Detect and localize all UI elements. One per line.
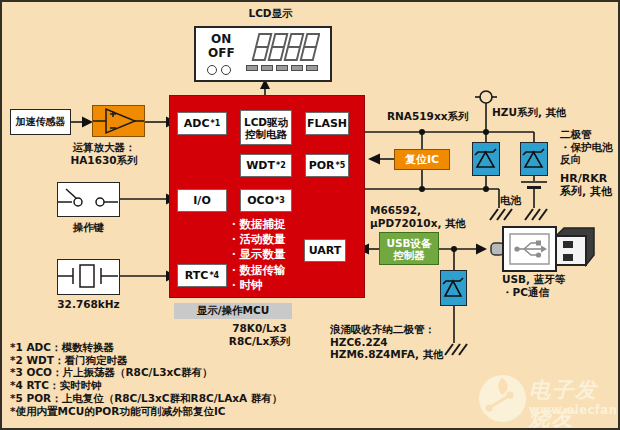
- mcu-caption-bar: 显示/操作MCU: [174, 303, 292, 319]
- mcu-flash-block: FLASH: [305, 112, 349, 135]
- switch-icon: [58, 183, 118, 215]
- mcu-feature-item: ・时钟: [228, 278, 286, 293]
- lcd-on-label: ON: [211, 32, 231, 46]
- battery-label: 电池: [500, 194, 521, 207]
- mcu-rtc-block: RTC*4: [177, 264, 227, 287]
- crystal-icon: [58, 260, 118, 293]
- lcd-title: LCD显示: [228, 7, 313, 20]
- mcu-feature-item: ・活动数量: [228, 232, 286, 247]
- lcd-display: ON OFF: [194, 26, 332, 82]
- lcd-off-label: OFF: [208, 46, 235, 60]
- usb-controller-box: USB设备 控制器: [379, 232, 439, 265]
- mcu-uart-block: UART: [304, 239, 346, 262]
- watermark-site-url: www.elecfans.com: [529, 403, 620, 417]
- keys-caption: 操作键: [57, 221, 120, 234]
- diode-note: 二极管 ・保护电池 反向: [560, 128, 613, 166]
- rna-series-label: RNA519xx系列: [387, 110, 468, 123]
- seven-segment-icon: [246, 31, 320, 63]
- mcu-feature-item: ・数据捕捉: [228, 217, 286, 232]
- usb-usage-label: USB, 蓝牙等 ・PC通信: [502, 273, 565, 298]
- mcu-adc-block: ADC*1: [177, 112, 227, 135]
- usb-plug-icon: [490, 224, 596, 276]
- supply-terminal-icon: [480, 91, 492, 103]
- mcu-feature-item: ・显示数量: [228, 247, 286, 262]
- zener-diode-icon: [521, 143, 546, 174]
- reset-ic-box: 复位IC: [394, 149, 450, 170]
- crystal-box: [57, 259, 120, 295]
- mcu-io-block: I/O: [177, 189, 227, 212]
- footnote-line: *5 POR：上电复位（R8C/L3xC群和R8C/LAxA 群有）: [10, 392, 282, 405]
- hzu-series-label: HZU系列, 其他: [492, 106, 567, 119]
- mcu-wdt-block: WDT*2: [240, 154, 292, 177]
- battery-diode-1: [472, 142, 500, 176]
- elecfans-logo-icon: [479, 375, 526, 422]
- surge-zener-diode: [440, 270, 467, 306]
- footnote-line: *3 OCO：片上振荡器（R8C/L3xC群有）: [10, 366, 282, 379]
- hr-rkr-label: HR/RKR 系列, 其他: [560, 173, 612, 198]
- footnotes: *1 ADC：模数转换器 *2 WDT：看门狗定时器 *3 OCO：片上振荡器（…: [10, 341, 282, 417]
- mcu-lcd-drive-block: LCD驱动 控制电路: [240, 110, 292, 145]
- zener-diode-icon: [473, 143, 498, 174]
- keys-box: [57, 182, 120, 217]
- block-diagram: LCD显示 ON OFF 加速传感器: [0, 0, 620, 430]
- accel-sensor-box: 加速传感器: [10, 109, 71, 135]
- mcu-oco-block: OCO*3: [240, 189, 292, 212]
- mcu-feature-list: ・数据捕捉 ・活动数量 ・显示数量 ・数据传输 ・时钟: [228, 217, 286, 293]
- opamp-caption: 运算放大器： HA1630系列: [64, 141, 144, 166]
- crystal-caption: 32.768kHz: [52, 298, 125, 311]
- battery-diode-2: [520, 142, 548, 176]
- mcu-por-block: POR*5: [305, 154, 349, 177]
- footnote-line: *4 RTC：实时时钟: [10, 379, 282, 392]
- surge-zener-note: 浪涌吸收齐纳二极管： HZC6.2Z4 HZM6.8Z4MFA, 其他: [330, 323, 444, 361]
- lcd-indicator-circle: [207, 65, 217, 75]
- opamp-box: [92, 105, 145, 137]
- opamp-icon: [93, 106, 144, 136]
- footnote-line: *2 WDT：看门狗定时器: [10, 354, 282, 367]
- mcu-feature-item: ・数据传输: [228, 263, 286, 278]
- footnote-line: *1 ADC：模数转换器: [10, 341, 282, 354]
- zener-diode-icon: [441, 271, 465, 304]
- lcd-segment-bars: [246, 65, 318, 71]
- footnote-line: *使用内置MCU的POR功能可削减外部复位IC: [10, 405, 282, 418]
- usb-controller-parts-label: M66592, μPD72010x, 其他: [370, 204, 466, 229]
- lcd-indicator-circle: [221, 65, 231, 75]
